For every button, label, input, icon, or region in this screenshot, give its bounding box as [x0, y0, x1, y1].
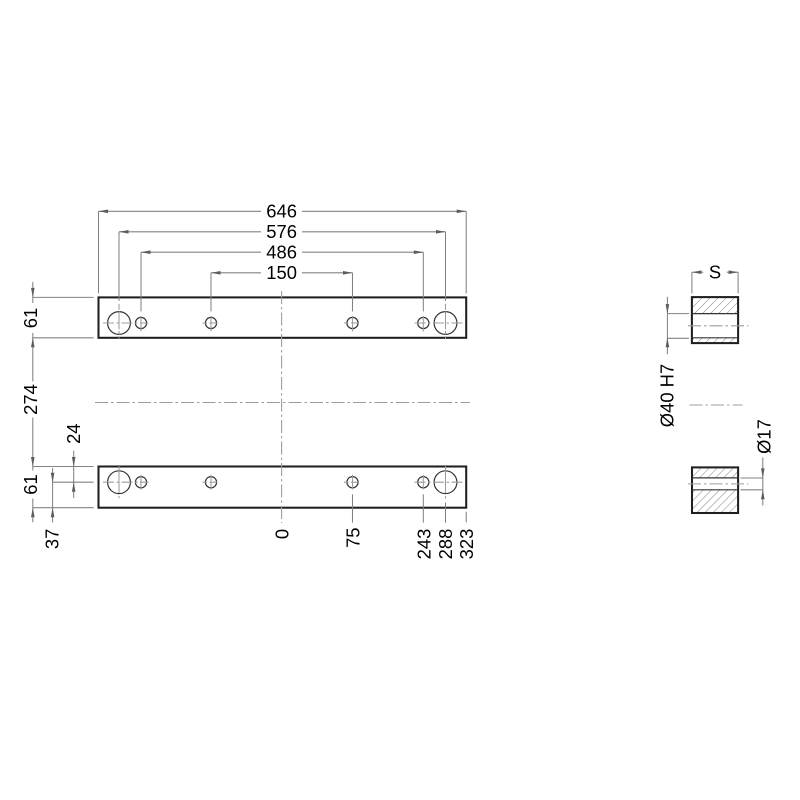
svg-text:37: 37: [42, 529, 63, 549]
svg-text:61: 61: [20, 308, 41, 328]
svg-text:Ø17: Ø17: [753, 419, 774, 454]
svg-text:S: S: [709, 262, 721, 283]
svg-text:61: 61: [20, 474, 41, 494]
svg-text:Ø40 H7: Ø40 H7: [656, 364, 677, 427]
svg-text:486: 486: [266, 242, 297, 263]
svg-text:288: 288: [435, 529, 456, 560]
svg-text:323: 323: [456, 529, 477, 560]
svg-text:75: 75: [342, 527, 363, 547]
svg-text:150: 150: [266, 262, 297, 283]
svg-text:24: 24: [63, 423, 84, 443]
svg-text:646: 646: [266, 201, 297, 222]
svg-text:576: 576: [266, 221, 297, 242]
svg-text:0: 0: [272, 529, 293, 539]
svg-text:274: 274: [20, 384, 41, 415]
svg-text:243: 243: [414, 529, 435, 560]
